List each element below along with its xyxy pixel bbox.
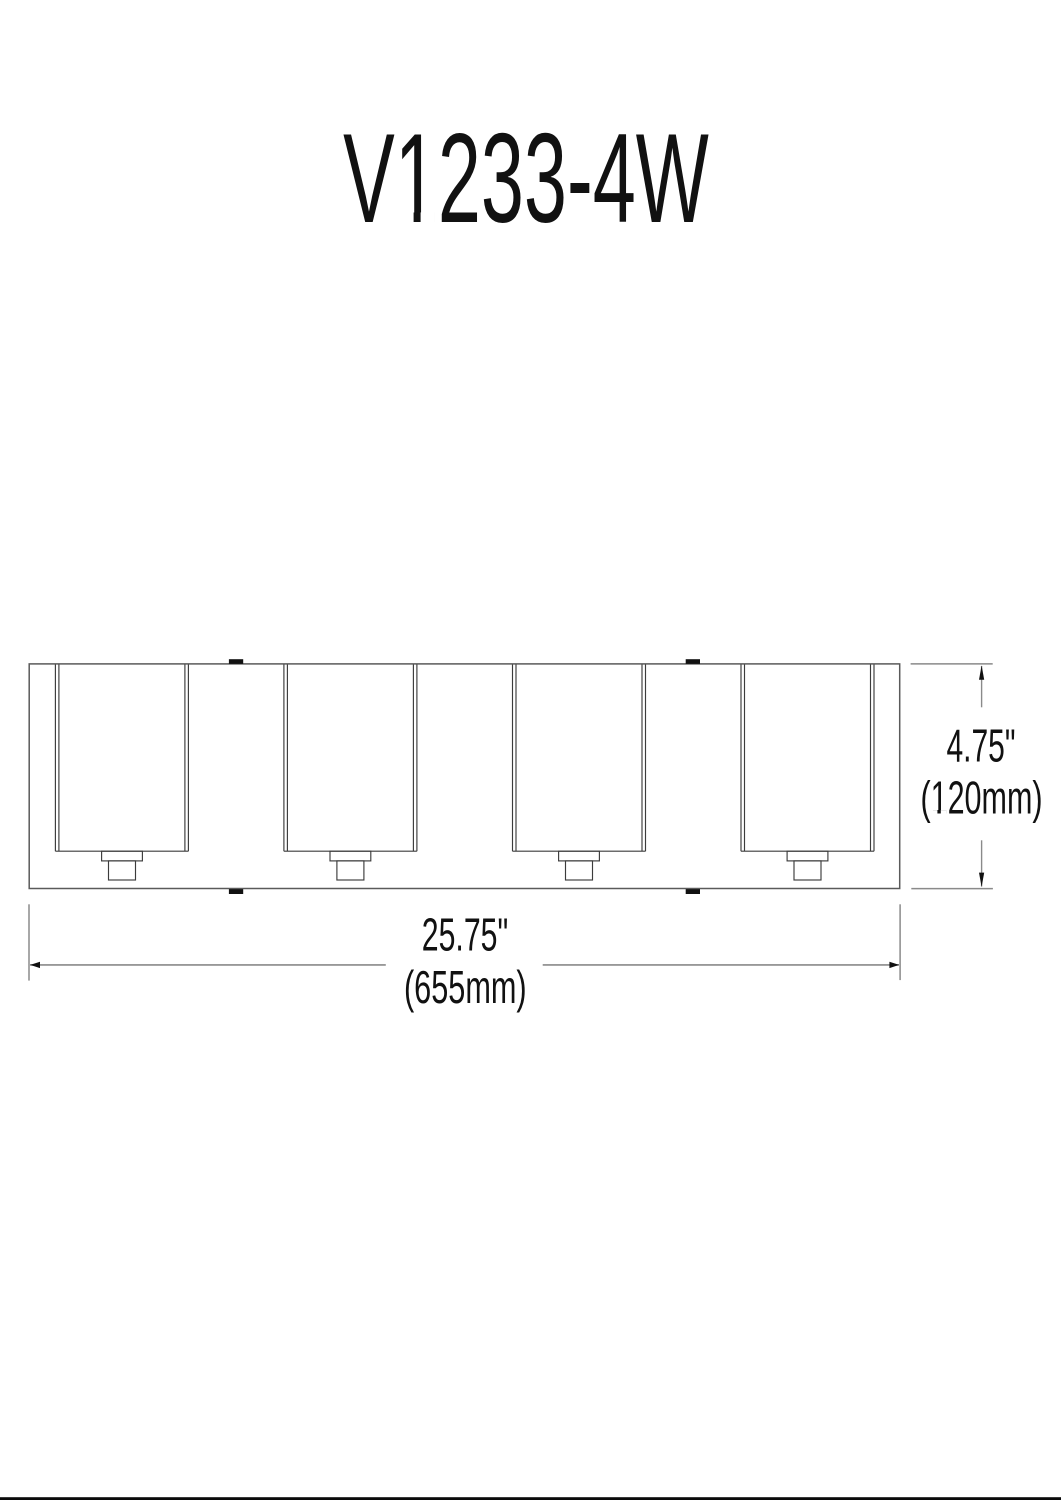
svg-text:4.75": 4.75" <box>946 720 1015 772</box>
svg-text:25.75": 25.75" <box>422 909 508 961</box>
svg-text:(120mm): (120mm) <box>920 772 1042 824</box>
svg-text:V1233-4W: V1233-4W <box>343 107 709 249</box>
svg-text:(655mm): (655mm) <box>404 961 527 1013</box>
